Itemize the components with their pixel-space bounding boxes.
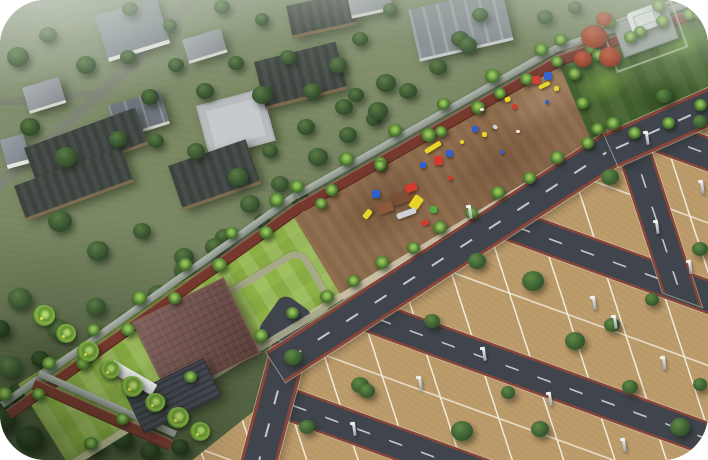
tree <box>308 148 328 166</box>
tree <box>284 349 302 365</box>
palm-tree <box>212 258 227 272</box>
palm-tree <box>534 43 548 56</box>
palm-tree <box>433 221 447 234</box>
tree <box>76 56 96 74</box>
palm-tree <box>407 242 420 254</box>
tree <box>568 1 582 14</box>
palm-tree <box>551 56 563 67</box>
tree <box>383 3 397 16</box>
tree <box>87 241 109 261</box>
tree <box>693 115 707 128</box>
tree <box>670 418 690 436</box>
tree <box>604 318 620 332</box>
tree <box>303 83 321 99</box>
tree <box>522 271 544 291</box>
tree <box>472 8 488 22</box>
palm-tree <box>325 184 338 196</box>
palm-tree <box>178 258 192 271</box>
palm-tree <box>435 126 447 137</box>
tree <box>171 439 189 455</box>
playground-equipment <box>448 176 453 180</box>
tree <box>376 74 396 92</box>
tree <box>501 386 515 399</box>
tree <box>297 119 315 135</box>
palm-tree <box>87 324 100 336</box>
palm-tree <box>42 357 56 370</box>
tree <box>48 210 72 232</box>
playground-equipment <box>500 150 504 154</box>
tree <box>187 143 205 159</box>
tree <box>359 384 375 398</box>
topiary-bush <box>100 360 120 379</box>
tree <box>692 242 708 256</box>
topiary-bush <box>77 341 99 362</box>
tree <box>16 426 44 451</box>
tree <box>252 86 272 104</box>
aerial-image <box>0 0 708 460</box>
tree <box>20 118 40 136</box>
playground-equipment <box>482 132 487 137</box>
topiary-bush <box>33 305 55 326</box>
tree <box>163 19 177 32</box>
tree <box>352 32 368 46</box>
tree <box>693 378 707 391</box>
red-flowering-tree <box>596 12 612 26</box>
tree <box>196 83 214 99</box>
tree <box>7 47 29 67</box>
palm-tree <box>259 226 273 239</box>
tree <box>537 10 553 24</box>
palm-tree <box>32 388 45 400</box>
palm-tree <box>269 193 284 207</box>
tree <box>39 27 57 43</box>
tree <box>109 131 127 147</box>
tree <box>429 59 447 75</box>
palm-tree <box>168 292 181 304</box>
red-flowering-tree <box>599 47 621 67</box>
palm-tree <box>320 290 334 303</box>
tree <box>122 2 138 16</box>
tree <box>55 147 77 167</box>
palm-tree <box>692 7 705 19</box>
playground-equipment <box>480 108 484 111</box>
topiary-bush <box>145 393 165 412</box>
playground-equipment <box>545 100 549 104</box>
tree <box>148 134 164 148</box>
red-flowering-tree <box>581 25 607 48</box>
tree <box>656 89 672 103</box>
topiary-bush <box>167 407 189 428</box>
tree <box>424 314 440 328</box>
playground-equipment <box>460 140 464 144</box>
tree <box>329 57 347 73</box>
playground-equipment <box>554 86 559 91</box>
red-flowering-tree <box>574 51 592 67</box>
palm-tree <box>568 68 581 80</box>
palm-tree <box>606 117 620 130</box>
playground-equipment <box>512 104 517 109</box>
palm-tree <box>550 151 564 164</box>
playground-equipment <box>434 156 443 165</box>
tree <box>168 58 184 72</box>
tree <box>451 421 473 441</box>
tree <box>399 83 417 99</box>
tree <box>335 99 353 115</box>
playground-equipment <box>420 162 426 168</box>
tree <box>348 88 364 102</box>
tree <box>531 421 549 437</box>
tree <box>255 13 269 26</box>
tree <box>339 127 357 143</box>
playground-equipment <box>516 130 520 133</box>
palm-tree <box>375 256 389 269</box>
tree <box>601 169 619 185</box>
playground-equipment <box>372 190 380 198</box>
tree <box>299 420 315 434</box>
tree <box>141 89 159 105</box>
tree <box>133 223 151 239</box>
topiary-bush <box>190 422 210 441</box>
tree <box>228 56 244 70</box>
tree <box>271 176 289 192</box>
tree <box>240 195 260 213</box>
tree <box>468 253 486 269</box>
palm-tree <box>485 69 500 83</box>
palm-tree <box>374 160 386 171</box>
playground-equipment <box>532 76 540 84</box>
palm-tree <box>315 198 327 209</box>
tree <box>8 288 32 310</box>
palm-tree <box>290 180 304 193</box>
tree <box>645 293 659 306</box>
playground-equipment <box>446 150 453 157</box>
topiary-bush <box>121 376 143 397</box>
tree <box>459 37 477 53</box>
tree <box>214 0 230 14</box>
tree <box>228 168 248 186</box>
playground-equipment <box>544 72 552 80</box>
tree <box>86 298 106 316</box>
palm-tree <box>254 329 268 342</box>
tree <box>368 102 388 120</box>
tree <box>280 50 296 64</box>
tree <box>622 380 638 394</box>
topiary-bush <box>56 324 76 343</box>
palm-tree <box>225 227 238 239</box>
tree <box>120 50 136 64</box>
playground-equipment <box>430 206 437 213</box>
tree <box>262 144 278 158</box>
playground-equipment <box>472 126 478 132</box>
palm-tree <box>0 387 12 401</box>
tree <box>565 332 585 350</box>
palm-tree <box>491 186 505 199</box>
